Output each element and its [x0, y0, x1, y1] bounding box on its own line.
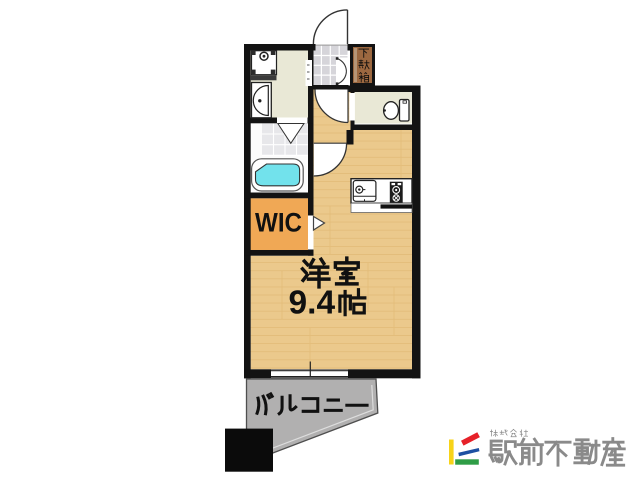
- svg-text:9.4: 9.4: [289, 285, 336, 322]
- svg-text:WIC: WIC: [255, 208, 302, 238]
